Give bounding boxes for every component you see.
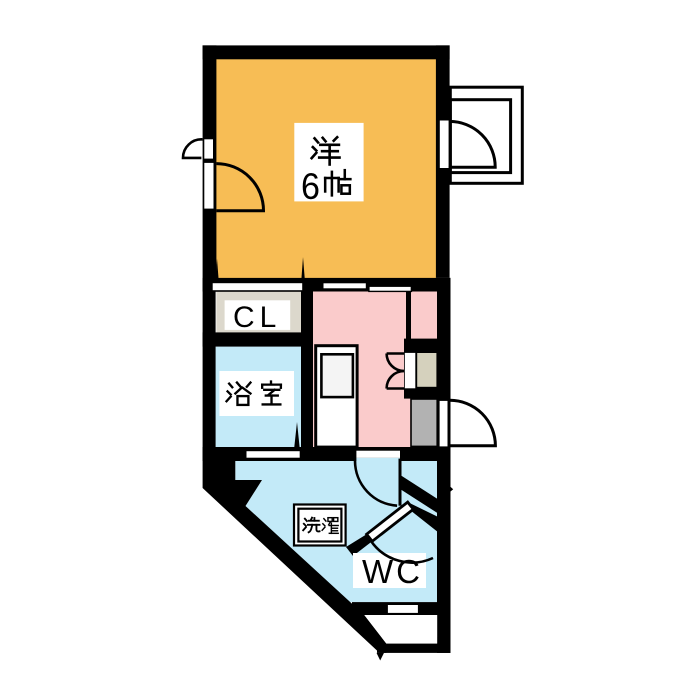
- svg-text:6: 6: [301, 166, 320, 208]
- svg-text:CL: CL: [233, 301, 281, 334]
